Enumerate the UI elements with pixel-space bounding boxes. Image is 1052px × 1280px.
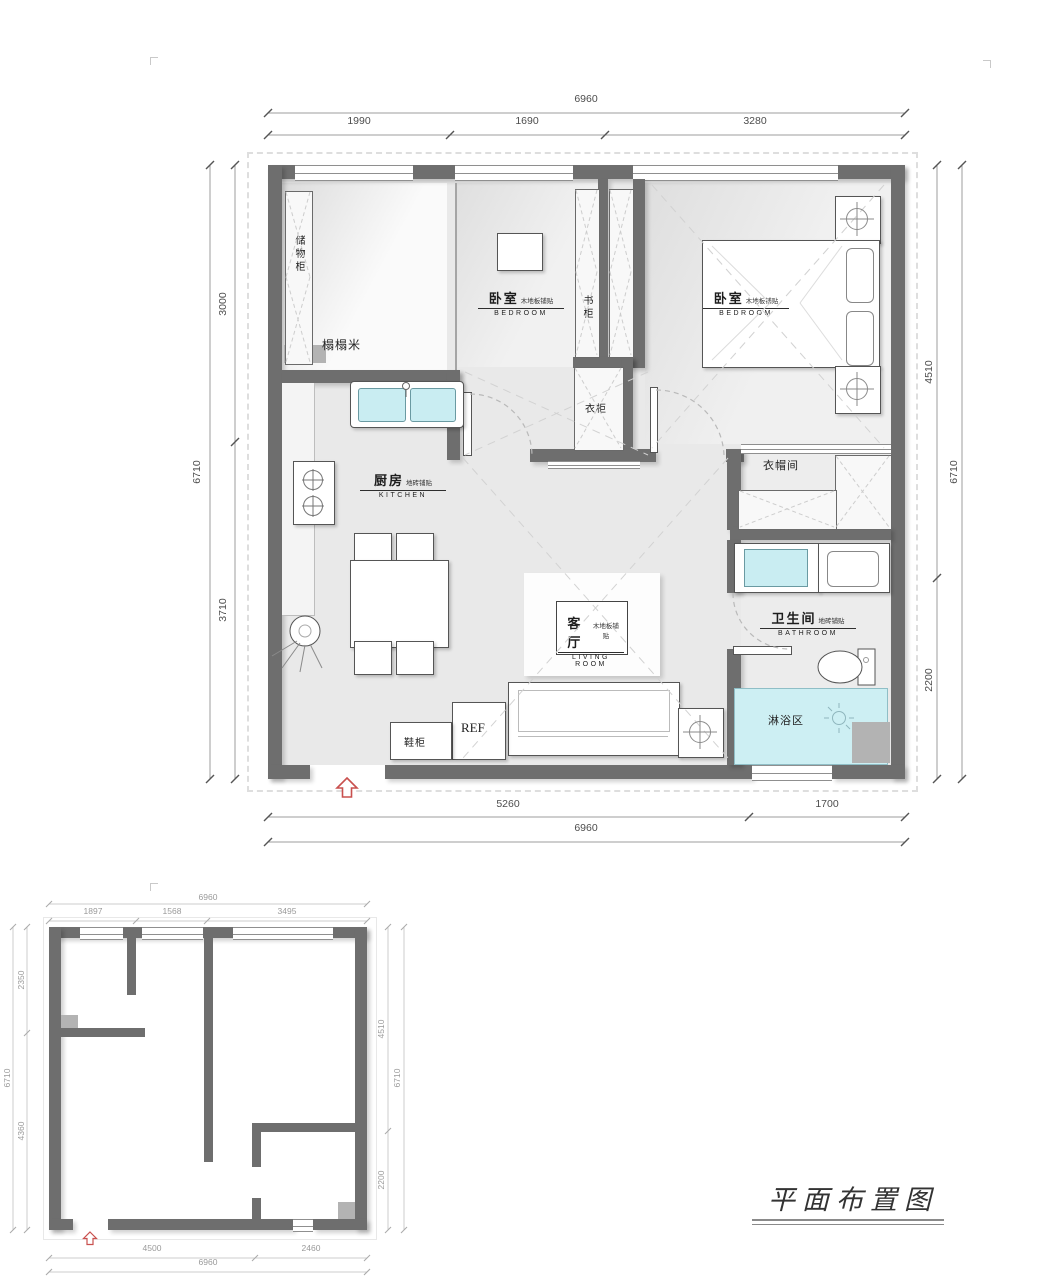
door-leaf-bathroom xyxy=(733,646,792,655)
bedroom-a-label: 卧室木地板铺贴 BEDROOM xyxy=(478,288,564,317)
door-leaf-bedroom-b xyxy=(650,387,658,453)
s-wall-bottom-a xyxy=(49,1219,73,1230)
s-dim-right-seg1: 4510 xyxy=(376,1007,386,1051)
nightstand-top xyxy=(835,196,881,244)
s-wall-stub-top xyxy=(127,938,136,995)
s-column-left xyxy=(61,1015,78,1028)
sliding-door-cloakroom xyxy=(741,444,891,454)
partition-tatami-bedroom xyxy=(455,183,457,370)
s-dim-top-seg1: 1897 xyxy=(71,906,115,916)
floor-cushion xyxy=(497,233,543,271)
registration-mark xyxy=(150,883,158,891)
s-dim-left-seg2: 4360 xyxy=(16,1109,26,1153)
window-top-1 xyxy=(295,165,413,181)
s-wall-left xyxy=(49,927,61,1230)
s-column-right xyxy=(338,1202,355,1219)
s-dim-top-seg3: 3495 xyxy=(265,906,309,916)
s-window-top-1 xyxy=(80,927,123,940)
registration-mark xyxy=(150,57,158,65)
sheet-title: 平面布置图 xyxy=(768,1178,938,1217)
s-wall-right-horizontal xyxy=(252,1123,355,1132)
dim-left-total: 6710 xyxy=(191,444,203,500)
washing-machine-drum xyxy=(827,551,879,587)
bedroom-b-label: 卧室木地板铺贴 BEDROOM xyxy=(703,288,789,317)
title-underline-1 xyxy=(752,1219,944,1221)
s-window-top-2 xyxy=(142,927,203,940)
wall-outer-left xyxy=(268,165,282,779)
side-table xyxy=(678,708,724,758)
s-wall-stub-mid xyxy=(252,1132,261,1167)
window-top-2 xyxy=(455,165,573,181)
window-top-3 xyxy=(633,165,838,181)
s-dim-top-seg2: 1568 xyxy=(150,906,194,916)
tatami-label: 榻榻米 xyxy=(322,336,361,353)
dining-table xyxy=(350,560,449,648)
dim-bottom-seg1: 5260 xyxy=(480,798,536,810)
title-underline-2 xyxy=(752,1224,944,1225)
cloakroom-label: 衣帽间 xyxy=(763,457,799,473)
bookcase-cabinet xyxy=(575,189,600,358)
wall-bedroom-b-west xyxy=(633,179,645,368)
s-wall-stub-bottom xyxy=(252,1198,261,1219)
bookcase-label: 书柜 xyxy=(579,295,594,321)
dim-top-seg1: 1990 xyxy=(331,115,387,127)
s-dim-right-seg2: 2200 xyxy=(376,1158,386,1202)
dim-top-seg2: 1690 xyxy=(499,115,555,127)
s-wall-right xyxy=(355,927,367,1230)
wall-outer-bottom-b xyxy=(385,765,752,779)
wall-outer-bottom-a xyxy=(268,765,310,779)
dining-chair-3 xyxy=(354,641,392,675)
dining-chair-4 xyxy=(396,641,434,675)
s-wall-center-vertical xyxy=(204,938,213,1162)
shower-curb-block xyxy=(852,722,890,763)
cooktop xyxy=(293,461,335,525)
dim-left-seg1: 3000 xyxy=(217,276,229,332)
window-bottom xyxy=(752,765,832,781)
dim-right-total: 6710 xyxy=(948,444,960,500)
wardrobe-label: 衣柜 xyxy=(585,400,607,415)
s-window-bottom xyxy=(293,1219,313,1232)
registration-mark xyxy=(983,60,991,68)
s-dim-left-seg1: 2350 xyxy=(16,958,26,1002)
dim-left-seg2: 3710 xyxy=(217,582,229,638)
s-dim-bottom-seg1: 4500 xyxy=(130,1243,174,1253)
floor-plan-sheet: 储物柜 榻榻米 书柜 衣柜 衣帽间 淋浴区 鞋柜 REF 卧室木地板铺贴 BED… xyxy=(0,0,1052,1280)
door-leaf-bedroom-a xyxy=(463,392,472,456)
wall-outer-bottom-c xyxy=(832,765,905,779)
dim-top-seg3: 3280 xyxy=(727,115,783,127)
bathroom-sink xyxy=(744,549,808,587)
s-wall-bottom-b xyxy=(108,1219,293,1230)
storage-cabinet-label: 储物柜 xyxy=(291,235,306,274)
s-dim-right-total: 6710 xyxy=(392,1056,402,1100)
dim-bottom-total: 6960 xyxy=(558,822,614,834)
sofa-back-cushion xyxy=(518,690,670,732)
s-dim-bottom-seg2: 2460 xyxy=(289,1243,333,1253)
dim-top-total: 6960 xyxy=(558,93,614,105)
s-dim-top-total: 6960 xyxy=(186,892,230,902)
fridge-label: REF xyxy=(461,720,485,736)
nightstand-bottom xyxy=(835,366,881,414)
sink-basin-right xyxy=(410,388,456,422)
sliding-rail-hall xyxy=(548,461,640,469)
dim-right-seg1: 4510 xyxy=(923,344,935,400)
bathroom-label: 卫生间地砖铺贴 BATHROOM xyxy=(760,608,856,637)
sofa-seat-line xyxy=(518,736,668,749)
dim-bottom-seg2: 1700 xyxy=(799,798,855,810)
s-dim-bottom-total: 6960 xyxy=(186,1257,230,1267)
shower-area-label: 淋浴区 xyxy=(768,712,804,728)
bedroom-b-cabinet xyxy=(609,189,634,358)
cloakroom-cabinet-bottom xyxy=(738,490,837,530)
shoe-cabinet-label: 鞋柜 xyxy=(404,734,426,749)
s-dim-left-total: 6710 xyxy=(2,1056,12,1100)
pillow-2 xyxy=(846,311,874,366)
cloakroom-cabinet-right xyxy=(835,455,892,530)
sink-basin-left xyxy=(358,388,406,422)
kitchen-label: 厨房地砖铺贴 KITCHEN xyxy=(360,470,446,499)
living-room-label: 客厅木地板铺贴 LIVING ROOM xyxy=(558,613,624,668)
pillow-1 xyxy=(846,248,874,303)
storage-cabinet xyxy=(285,191,313,365)
dim-right-seg2: 2200 xyxy=(923,652,935,708)
wall-outer-right xyxy=(891,165,905,779)
s-wall-bottom-c xyxy=(313,1219,367,1230)
s-wall-left-horizontal xyxy=(61,1028,145,1037)
s-window-top-3 xyxy=(233,927,333,940)
